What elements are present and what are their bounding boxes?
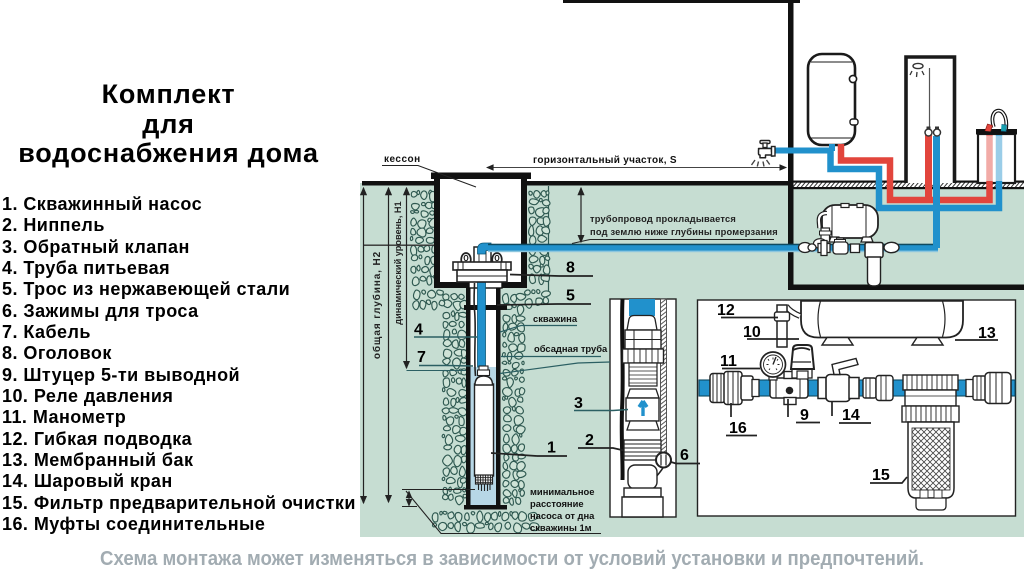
svg-text:динамический уровень, Н1: динамический уровень, Н1: [393, 201, 403, 324]
svg-text:5: 5: [566, 288, 575, 305]
svg-text:расстояние: расстояние: [530, 498, 584, 509]
svg-text:3: 3: [574, 395, 583, 412]
svg-text:кессон: кессон: [384, 154, 421, 165]
svg-text:9: 9: [800, 407, 809, 424]
svg-text:насоса от дна: насоса от дна: [530, 510, 595, 521]
svg-text:11: 11: [720, 353, 737, 370]
svg-text:скважина: скважина: [533, 313, 578, 324]
svg-text:15: 15: [872, 467, 890, 484]
svg-text:14: 14: [842, 407, 860, 424]
svg-text:1: 1: [547, 440, 556, 457]
svg-text:трубопровод прокладывается: трубопровод прокладывается: [590, 214, 736, 224]
svg-text:общая глубина, Н2: общая глубина, Н2: [371, 251, 383, 359]
svg-text:горизонтальный участок, S: горизонтальный участок, S: [533, 155, 677, 166]
svg-text:6: 6: [680, 447, 689, 464]
svg-text:скважины 1м: скважины 1м: [530, 522, 592, 533]
svg-text:обсадная труба: обсадная труба: [534, 343, 608, 354]
svg-text:под землю ниже глубины про: под землю ниже глубины промерзания: [590, 227, 778, 237]
svg-text:12: 12: [717, 302, 735, 319]
svg-text:4: 4: [414, 322, 423, 339]
svg-text:2: 2: [585, 432, 594, 449]
svg-text:16: 16: [729, 420, 747, 437]
svg-text:минимальное: минимальное: [530, 486, 594, 497]
svg-text:8: 8: [566, 260, 575, 277]
svg-text:7: 7: [417, 349, 426, 366]
